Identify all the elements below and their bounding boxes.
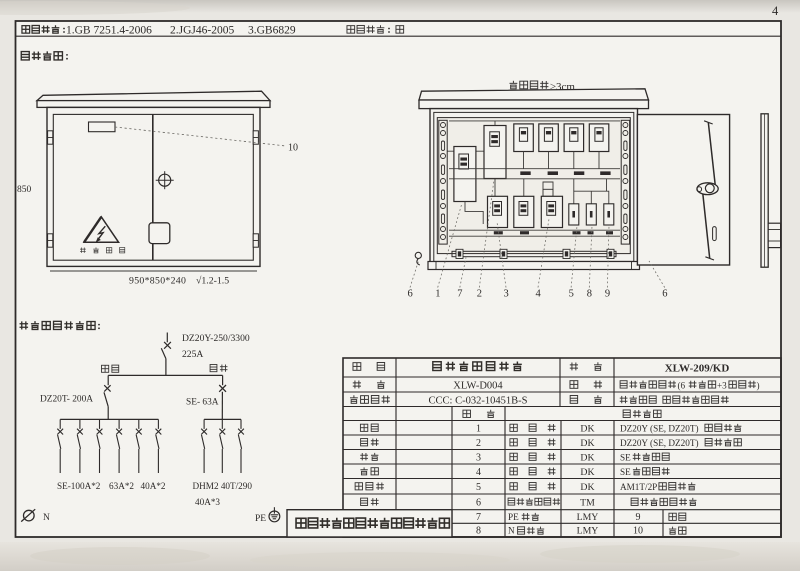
svg-text:+3: +3	[717, 380, 727, 390]
svg-text:DK: DK	[580, 467, 594, 478]
svg-text:DZ20T- 200A: DZ20T- 200A	[40, 395, 93, 405]
svg-text:950*850*240: 950*850*240	[129, 276, 186, 287]
svg-text:√1.2-1.5: √1.2-1.5	[196, 276, 229, 287]
svg-text:SE: SE	[620, 452, 631, 462]
svg-text:5: 5	[569, 289, 574, 300]
svg-text:XLW-209/KD: XLW-209/KD	[665, 363, 730, 375]
svg-text:DK: DK	[580, 482, 594, 493]
svg-text:DK: DK	[580, 438, 594, 449]
svg-text:SE: SE	[620, 467, 631, 477]
svg-text:2: 2	[477, 289, 482, 300]
svg-text:8: 8	[476, 526, 481, 537]
svg-text:3: 3	[476, 452, 481, 463]
svg-text:3: 3	[504, 289, 509, 300]
svg-text:SE- 63A: SE- 63A	[186, 398, 219, 408]
svg-text:N: N	[43, 513, 50, 523]
svg-text:AM1T/2P: AM1T/2P	[620, 482, 657, 492]
svg-text:DK: DK	[580, 423, 594, 434]
svg-text:63A*2: 63A*2	[109, 481, 134, 491]
svg-text:225A: 225A	[182, 349, 203, 360]
svg-text:4: 4	[536, 289, 542, 300]
svg-text:PE: PE	[508, 512, 519, 522]
svg-text:1.GB 7251.4-2006: 1.GB 7251.4-2006	[66, 25, 152, 37]
svg-text:9: 9	[636, 512, 641, 523]
svg-text:): )	[757, 380, 760, 390]
svg-text:9: 9	[605, 289, 610, 300]
svg-text:40A*3: 40A*3	[195, 497, 220, 507]
svg-text:10: 10	[288, 143, 298, 154]
svg-text:3.GB6829: 3.GB6829	[248, 25, 296, 37]
svg-text:LMY: LMY	[577, 526, 599, 537]
svg-text:LMY: LMY	[577, 512, 599, 523]
svg-text:850: 850	[17, 185, 32, 195]
svg-text:SE-100A*2: SE-100A*2	[57, 481, 101, 491]
svg-text:7: 7	[476, 512, 481, 523]
svg-text:DK: DK	[580, 452, 594, 463]
svg-text:4: 4	[772, 4, 779, 18]
svg-text:6: 6	[408, 289, 413, 300]
svg-text:CCC: C-032-10451B-S: CCC: C-032-10451B-S	[429, 396, 528, 407]
svg-text:TM: TM	[580, 498, 595, 509]
svg-text:40A*2: 40A*2	[141, 481, 166, 491]
svg-text:XLW-D004: XLW-D004	[453, 381, 503, 392]
svg-text:1: 1	[476, 423, 481, 434]
svg-text:4: 4	[476, 467, 481, 478]
svg-text:2: 2	[476, 438, 481, 449]
svg-text:(6: (6	[678, 380, 686, 390]
svg-text:6: 6	[476, 498, 481, 509]
svg-text:DZ20Y-250/3300: DZ20Y-250/3300	[182, 333, 250, 344]
svg-text:6: 6	[662, 289, 667, 300]
svg-text:N: N	[508, 526, 515, 536]
svg-text:7: 7	[457, 289, 462, 300]
svg-text:DZ20Y (SE, DZ20T): DZ20Y (SE, DZ20T)	[620, 438, 699, 448]
svg-text:PE: PE	[255, 514, 266, 524]
svg-text:DZ20Y (SE, DZ20T): DZ20Y (SE, DZ20T)	[620, 423, 699, 433]
svg-text:8: 8	[587, 289, 592, 300]
svg-text:1: 1	[435, 289, 440, 300]
svg-text:5: 5	[476, 482, 481, 493]
svg-text:2.JGJ46-2005: 2.JGJ46-2005	[170, 25, 234, 37]
svg-text:DHM2 40T/290: DHM2 40T/290	[193, 481, 253, 491]
svg-text:10: 10	[633, 526, 643, 537]
